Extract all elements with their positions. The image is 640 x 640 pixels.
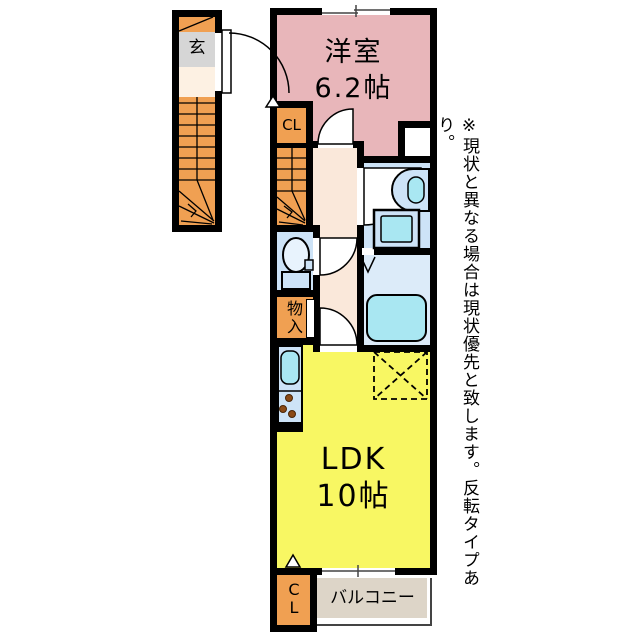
closet-lower-label: C L <box>283 581 305 618</box>
closet-lower-wall-left <box>270 575 277 632</box>
bathroom-door-opening <box>362 248 374 255</box>
kitchen-wall-stub <box>277 424 303 432</box>
bathroom <box>364 255 430 345</box>
ldk-door-opening <box>320 345 357 352</box>
toilet-wall-top <box>270 225 320 232</box>
western-room-size: 6.2帖 <box>277 74 430 104</box>
closet-upper-label: CL <box>277 117 306 134</box>
closet-lower-char2: L <box>283 599 305 617</box>
floor-plan: 洋室 6.2帖 LDK 10帖 玄 CL 物 入 C L バルコニー ※現状と異… <box>0 0 640 640</box>
entrance-label: 玄 <box>179 39 215 58</box>
balcony-border-bottom <box>317 624 432 626</box>
balcony-border-right <box>430 578 432 626</box>
entrance-door-leaf <box>222 30 231 93</box>
entrance-hall <box>179 67 215 97</box>
alcove-wall-left <box>398 121 405 163</box>
washroom-door-opening <box>357 168 364 225</box>
kitchen-wall-top <box>270 338 320 345</box>
storage-wall-top <box>270 290 320 297</box>
disclaimer-note: ※現状と異なる場合は現状優先と致します。反転タイプあり。 <box>452 116 482 616</box>
storage-label-char2: 入 <box>280 318 310 336</box>
western-room-label: 洋室 <box>277 38 430 68</box>
stair-right-wall <box>306 101 313 232</box>
storage-label: 物 入 <box>280 300 310 337</box>
toilet-door-opening <box>313 238 320 275</box>
closet-lower-wall-right <box>310 568 317 632</box>
ldk-size: 10帖 <box>277 480 430 513</box>
toilet-room <box>277 232 313 290</box>
window-bottom <box>322 568 395 575</box>
stairs-first-floor <box>179 97 215 225</box>
storage-label-char1: 物 <box>280 300 310 318</box>
stair-landing-top <box>179 17 215 32</box>
stairs-second-floor <box>277 148 306 232</box>
window-top <box>322 8 390 15</box>
closet-lower-wall-bottom <box>270 625 317 632</box>
ldk-label: LDK <box>277 443 430 476</box>
washroom <box>364 163 430 248</box>
kitchen-counter <box>277 345 303 424</box>
washroom-wall-top <box>357 156 437 163</box>
entrance-door-opening <box>215 33 222 91</box>
western-room-door-opening <box>318 141 353 148</box>
closet-lower-char1: C <box>283 581 305 599</box>
balcony-label: バルコニー <box>320 589 425 608</box>
